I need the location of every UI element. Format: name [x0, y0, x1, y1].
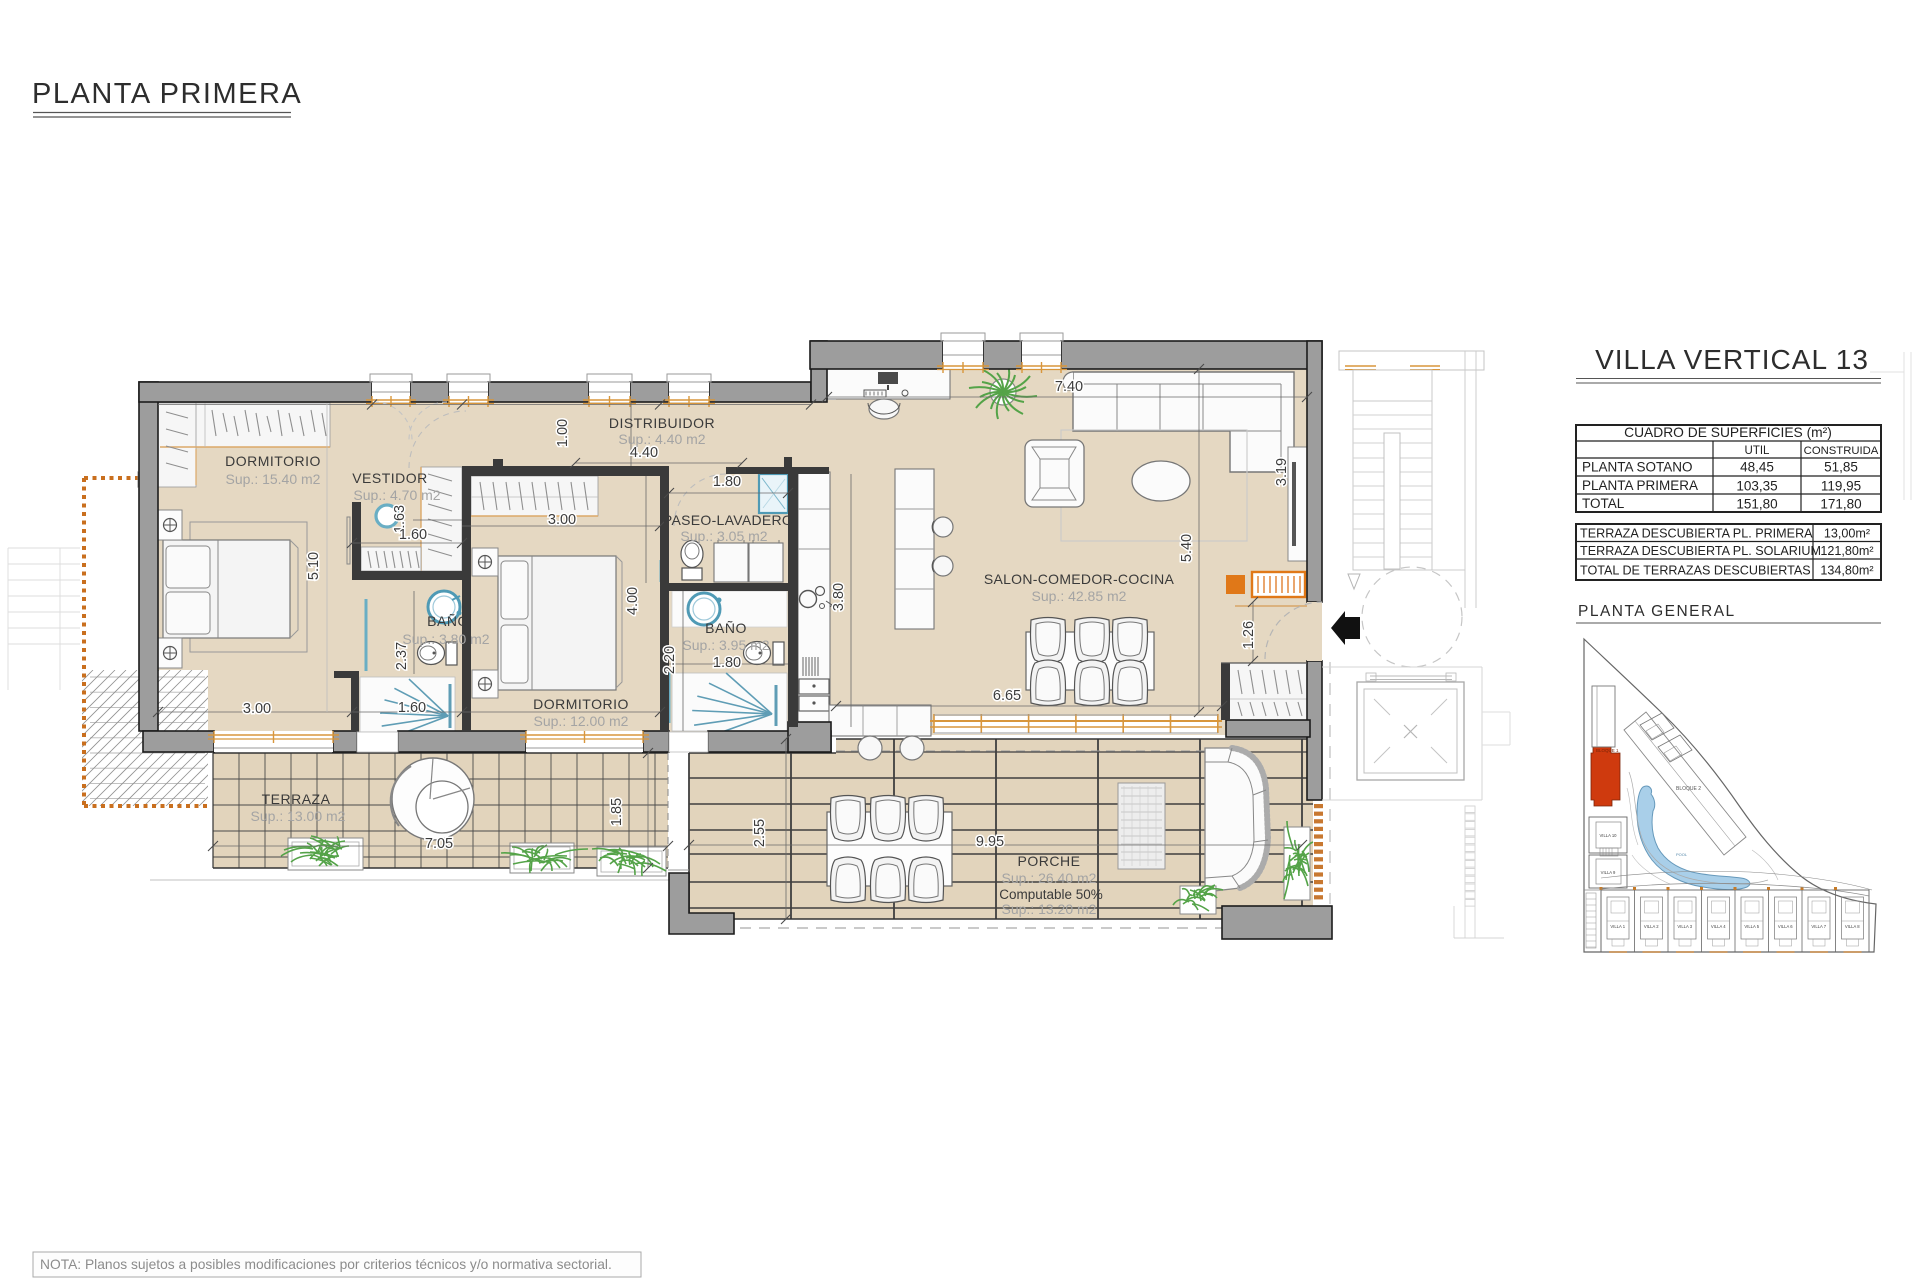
svg-text:Sup.: 12.00 m2: Sup.: 12.00 m2 — [534, 713, 629, 729]
svg-text:VILLA 2: VILLA 2 — [1644, 924, 1659, 929]
svg-text:7.05: 7.05 — [425, 836, 453, 852]
svg-text:TOTAL DE TERRAZAS DESCUBIERTAS: TOTAL DE TERRAZAS DESCUBIERTAS — [1580, 564, 1811, 578]
svg-text:PORCHE: PORCHE — [1018, 853, 1081, 869]
svg-text:CUADRO DE SUPERFICIES (m²): CUADRO DE SUPERFICIES (m²) — [1624, 425, 1832, 440]
svg-text:3.19: 3.19 — [1274, 458, 1290, 486]
svg-text:1.00: 1.00 — [555, 419, 571, 447]
svg-text:BAÑO: BAÑO — [427, 613, 469, 629]
svg-text:Sup.: 42.85 m2: Sup.: 42.85 m2 — [1032, 588, 1127, 604]
svg-text:151,80: 151,80 — [1736, 497, 1777, 512]
svg-text:TERRAZA DESCUBIERTA PL. SOLARI: TERRAZA DESCUBIERTA PL. SOLARIUM — [1580, 544, 1821, 558]
svg-text:Sup.: 4.70 m2: Sup.: 4.70 m2 — [353, 487, 440, 503]
svg-text:PLANTA SOTANO: PLANTA SOTANO — [1582, 460, 1693, 475]
svg-text:VILLA 5: VILLA 5 — [1744, 924, 1759, 929]
svg-text:3.00: 3.00 — [243, 701, 271, 717]
svg-text:NOTA: Planos sujetos a posible: NOTA: Planos sujetos a posibles modifica… — [40, 1257, 612, 1272]
svg-text:Sup.: 26.40 m2: Sup.: 26.40 m2 — [1002, 870, 1097, 886]
svg-text:BLOQUE 1: BLOQUE 1 — [1596, 748, 1619, 753]
svg-text:Sup.: 4.40 m2: Sup.: 4.40 m2 — [618, 431, 705, 447]
svg-text:DORMITORIO: DORMITORIO — [533, 696, 629, 712]
svg-text:Sup.: 13.20 m2: Sup.: 13.20 m2 — [1002, 901, 1097, 917]
svg-text:5.40: 5.40 — [1179, 534, 1195, 562]
svg-text:VILLA 4: VILLA 4 — [1711, 924, 1726, 929]
svg-text:13,00m²: 13,00m² — [1824, 527, 1870, 541]
svg-text:9.95: 9.95 — [976, 834, 1004, 850]
svg-text:PLANTA PRIMERA: PLANTA PRIMERA — [32, 78, 302, 110]
svg-text:3.00: 3.00 — [548, 512, 576, 528]
svg-text:4.00: 4.00 — [625, 587, 641, 615]
svg-text:1.85: 1.85 — [609, 798, 625, 826]
svg-text:TERRAZA DESCUBIERTA PL. PRIMER: TERRAZA DESCUBIERTA PL. PRIMERA — [1580, 527, 1813, 541]
svg-text:UTIL: UTIL — [1745, 445, 1771, 457]
svg-text:TERRAZA: TERRAZA — [262, 791, 331, 807]
svg-text:PLANTA PRIMERA: PLANTA PRIMERA — [1582, 478, 1698, 493]
svg-text:1.60: 1.60 — [398, 700, 426, 716]
svg-text:119,95: 119,95 — [1821, 479, 1861, 494]
svg-text:PLANTA GENERAL: PLANTA GENERAL — [1578, 603, 1736, 620]
svg-text:Sup.: 13.00 m2: Sup.: 13.00 m2 — [251, 808, 346, 824]
svg-text:BAÑO: BAÑO — [705, 620, 747, 636]
svg-text:VILLA 7: VILLA 7 — [1811, 924, 1826, 929]
svg-text:CONSTRUIDA: CONSTRUIDA — [1804, 445, 1879, 457]
svg-text:BLOQUE 2: BLOQUE 2 — [1676, 786, 1701, 792]
svg-text:4.40: 4.40 — [630, 445, 658, 461]
svg-text:VILLA 8: VILLA 8 — [1845, 924, 1860, 929]
svg-text:PASEO-LAVADERO: PASEO-LAVADERO — [663, 512, 793, 528]
svg-text:7.40: 7.40 — [1055, 379, 1083, 395]
svg-text:VILLA 10: VILLA 10 — [1600, 833, 1618, 838]
svg-text:6.65: 6.65 — [993, 688, 1021, 704]
svg-text:1.60: 1.60 — [399, 527, 427, 543]
svg-text:Sup.: 3.80 m2: Sup.: 3.80 m2 — [402, 631, 489, 647]
svg-text:Sup.: 3.95 m2: Sup.: 3.95 m2 — [682, 637, 769, 653]
svg-text:1.26: 1.26 — [1241, 621, 1257, 649]
svg-text:DORMITORIO: DORMITORIO — [225, 453, 321, 469]
svg-text:2.20: 2.20 — [662, 646, 678, 674]
svg-text:2.55: 2.55 — [752, 819, 768, 847]
svg-text:5.10: 5.10 — [306, 552, 322, 580]
svg-text:3.80: 3.80 — [831, 583, 847, 611]
svg-text:121,80m²: 121,80m² — [1820, 544, 1873, 558]
svg-text:48,45: 48,45 — [1740, 460, 1774, 475]
svg-text:VILLA 6: VILLA 6 — [1778, 924, 1793, 929]
svg-text:POOL: POOL — [1676, 852, 1688, 857]
svg-text:TOTAL: TOTAL — [1582, 496, 1625, 511]
svg-text:VILLA 9: VILLA 9 — [1601, 870, 1616, 875]
svg-text:VILLA VERTICAL 13: VILLA VERTICAL 13 — [1595, 344, 1869, 375]
svg-text:1.80: 1.80 — [713, 655, 741, 671]
svg-text:VILLA 1: VILLA 1 — [1610, 924, 1625, 929]
svg-text:171,80: 171,80 — [1820, 497, 1861, 512]
svg-text:VESTIDOR: VESTIDOR — [352, 470, 428, 486]
svg-text:134,80m²: 134,80m² — [1820, 564, 1873, 578]
svg-text:SALON-COMEDOR-COCINA: SALON-COMEDOR-COCINA — [984, 571, 1175, 587]
svg-text:DISTRIBUIDOR: DISTRIBUIDOR — [609, 415, 715, 431]
svg-text:51,85: 51,85 — [1824, 460, 1858, 475]
svg-text:Sup.: 3.05 m2: Sup.: 3.05 m2 — [680, 528, 767, 544]
svg-text:VILLA 3: VILLA 3 — [1677, 924, 1692, 929]
svg-text:Sup.: 15.40 m2: Sup.: 15.40 m2 — [226, 471, 321, 487]
svg-text:1.80: 1.80 — [713, 474, 741, 490]
svg-text:Computable 50%: Computable 50% — [999, 887, 1103, 902]
svg-text:103,35: 103,35 — [1736, 479, 1777, 494]
